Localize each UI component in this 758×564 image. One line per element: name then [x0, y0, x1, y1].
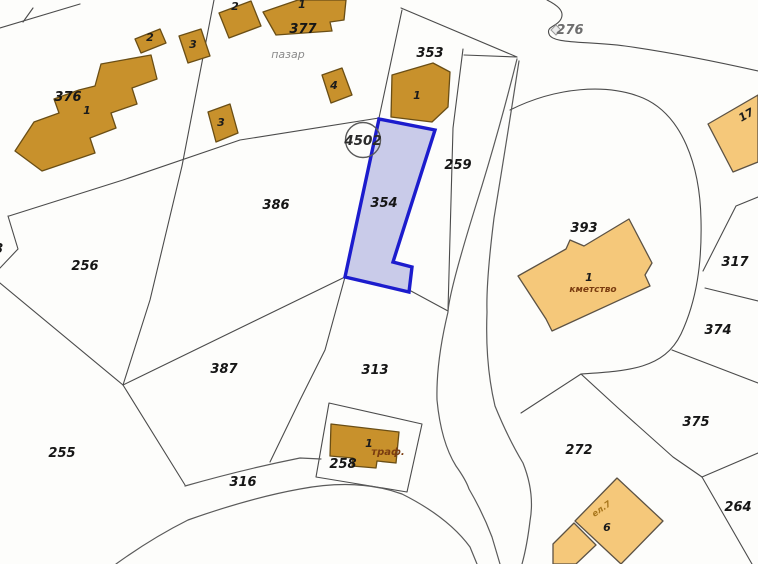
parcel-label-387: 387 — [210, 362, 238, 377]
circled-point-label: 4502 — [343, 123, 382, 158]
boundary-parcel376-east — [182, 0, 214, 166]
parcel-label-255: 255 — [48, 446, 75, 461]
boundary-parcel353-east — [448, 49, 463, 310]
parcel-label-375: 375 — [682, 415, 709, 430]
building-number-1: 1 — [413, 89, 421, 102]
building-2-top[interactable] — [219, 1, 261, 38]
roads — [116, 59, 531, 564]
building-number-2: 2 — [146, 31, 154, 44]
boundary-256-386 — [123, 166, 182, 385]
parcel-label-264: 264 — [724, 500, 751, 515]
boundary-272-north — [521, 374, 702, 477]
cadastral-map: 4502 37637735338625625538731631325825935… — [0, 0, 758, 564]
parcel-label-316: 316 — [229, 475, 256, 490]
map-canvas: 4502 37637735338625625538731631325825935… — [0, 0, 758, 564]
boundary-374-375 — [672, 350, 758, 383]
parcel-label-353: 353 — [416, 46, 443, 61]
annotation-пазар: пазар — [271, 48, 305, 61]
road-west-edge — [437, 59, 517, 564]
road-east-edge — [487, 61, 532, 564]
parcel-label-386: 386 — [262, 198, 289, 213]
building-number-3: 3 — [217, 116, 225, 129]
parcel-label-376: 376 — [54, 90, 81, 105]
parcel-label-276: 276 — [556, 23, 583, 38]
building-number-3: 3 — [189, 38, 197, 51]
boundary-354-313-link — [411, 291, 448, 311]
parcel-label-377: 377 — [289, 22, 317, 37]
parcel-label-259: 259 — [444, 158, 471, 173]
road-316-south-edge — [116, 485, 477, 564]
parcel-label-18: 18 — [0, 242, 3, 257]
parcel-label-258: 258 — [329, 457, 356, 472]
parcel-label-256: 256 — [71, 259, 98, 274]
boundary-255-256 — [0, 283, 123, 385]
boundary-387-south — [123, 385, 185, 485]
annotation-кметство: кметство — [569, 285, 616, 295]
point-number: 4502 — [343, 133, 382, 149]
building-number-2: 2 — [231, 0, 239, 13]
building-17[interactable] — [708, 95, 758, 172]
building-number-4: 4 — [329, 79, 338, 92]
parcel-label-354: 354 — [370, 196, 397, 211]
annotation-траф.: траф. — [371, 446, 404, 458]
parcel-label-313: 313 — [361, 363, 388, 378]
parcel-label-272: 272 — [565, 443, 592, 458]
parcel-label-374: 374 — [704, 323, 731, 338]
building-number-1: 1 — [585, 271, 593, 284]
boundary-393-sweep — [510, 89, 701, 374]
boundary-264-south — [702, 477, 752, 564]
building-number-1: 1 — [298, 0, 306, 11]
building-number-6: 6 — [603, 521, 611, 534]
parcel-label-393: 393 — [570, 221, 597, 236]
building-number-1: 1 — [83, 104, 91, 117]
parcel-label-317: 317 — [721, 255, 749, 270]
boundary-375-264 — [702, 453, 758, 477]
boundary-317-374 — [705, 288, 758, 301]
boundary-top-left-corner — [0, 4, 80, 28]
